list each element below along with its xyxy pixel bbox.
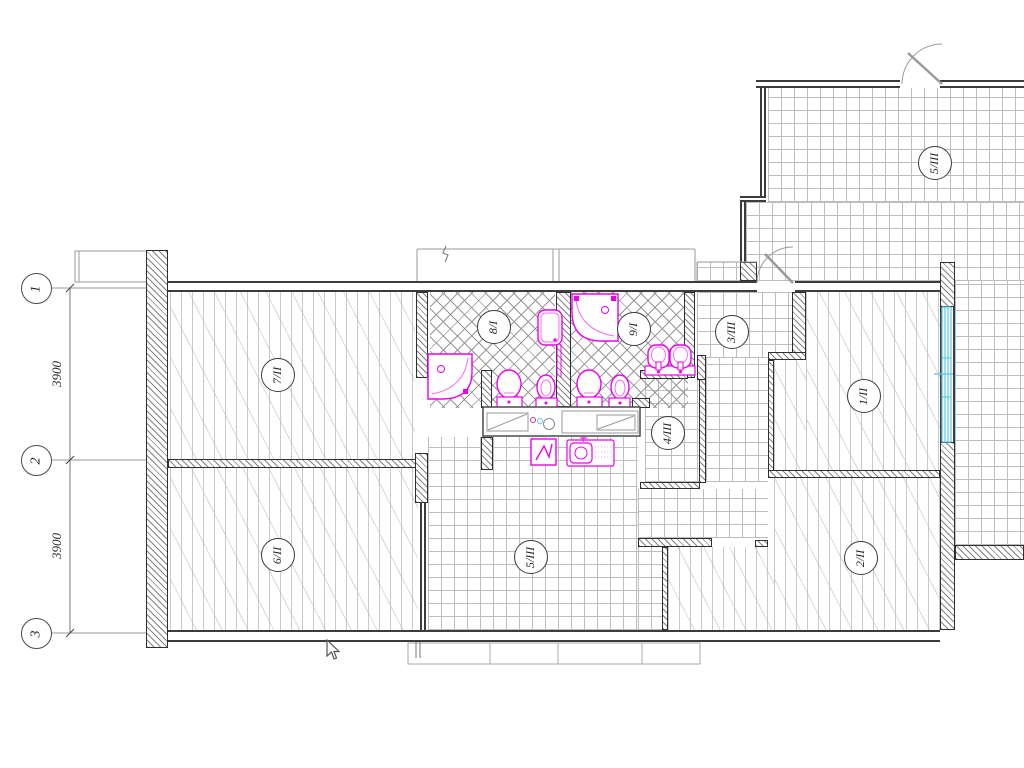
grid-axis-label: 2	[29, 457, 45, 464]
floor-upper-block-tile-c	[697, 262, 746, 281]
wall-pier-upper-block	[740, 262, 757, 281]
grid-axis-bubble-2: 2	[21, 445, 52, 476]
dimension-line-vertical	[52, 284, 146, 637]
room-marker-label: 3/III	[724, 321, 739, 342]
floor-upper-block-tile-b	[746, 202, 1024, 281]
room-marker-3: 3/III	[715, 315, 749, 349]
room-marker-9: 9/I	[617, 312, 651, 346]
grid-axis-bubble-3: 3	[21, 618, 52, 649]
dimension-text-2-3: 3900	[49, 533, 65, 559]
floor-upper-block-tile-a	[768, 88, 1024, 202]
wall-exterior-bottom	[168, 630, 940, 642]
wall-pier-counter-left	[481, 437, 493, 470]
room-marker-2: 2/II	[844, 541, 878, 575]
room-marker-label: 7/II	[270, 366, 285, 383]
room-marker-8: 8/I	[477, 310, 511, 344]
wall-exterior-right-lower	[940, 442, 955, 630]
wall-exterior-top-right	[795, 281, 940, 292]
wall-pier-toilet-left	[481, 370, 492, 408]
wall-corridor-room1	[768, 360, 774, 472]
wall-corridor-bottom-b	[755, 540, 768, 547]
floor-bathroom9-crosshatch	[571, 292, 688, 408]
room-marker-5-kitchen: 5/III	[514, 540, 548, 574]
wall-under-washbasins	[640, 370, 688, 379]
wall-room7-bath8	[416, 292, 428, 378]
wall-upper-block-top-right	[940, 80, 1024, 88]
room-marker-1: 1/II	[847, 379, 881, 413]
wall-right-window-jamb	[940, 307, 955, 442]
wall-exterior-top-left	[168, 281, 757, 292]
wall-room4-right	[699, 378, 706, 483]
balcony-outline-top-left	[75, 251, 146, 282]
wall-pier-toilet-right	[632, 398, 650, 408]
wall-kitchen-room6	[420, 503, 426, 630]
room-marker-label: 4/III	[660, 422, 675, 443]
floor-corridor-tile	[706, 358, 768, 482]
room-marker-label: 1/II	[856, 387, 871, 404]
door-upper-block	[902, 44, 942, 84]
wall-room4-junction	[697, 355, 706, 380]
wall-corridor-top	[768, 352, 806, 360]
floor-room1-parquet-ext	[774, 360, 806, 470]
floor-plan-canvas: 1 2 3 3900 3900 7/II 8/I 9/I 3/III 1/II …	[0, 0, 1024, 768]
wall-exterior-left	[146, 250, 168, 648]
wall-room1-room2	[768, 470, 940, 478]
floor-right-strip-tile	[955, 281, 1024, 545]
mouse-cursor	[327, 640, 339, 659]
wall-stub-room2	[662, 547, 668, 630]
grid-axis-bubble-1: 1	[21, 273, 52, 304]
room-marker-label: 6/II	[270, 546, 285, 563]
wall-exterior-right-upper	[940, 262, 955, 307]
room-marker-label: 5/III	[927, 152, 942, 173]
room-marker-5-upper: 5/III	[918, 146, 952, 180]
kitchen-counter-with-sinks	[483, 407, 640, 436]
floor-corridor-low-tile	[638, 489, 768, 538]
dimension-text-1-2: 3900	[49, 361, 65, 387]
room-marker-label: 5/III	[523, 546, 538, 567]
floor-room2-parquet-ext	[668, 547, 774, 630]
wall-pier-mid-left	[415, 453, 428, 503]
floor-kitchen-tile	[428, 437, 638, 630]
wall-corridor-bottom-a	[638, 538, 712, 547]
floor-corridor-stub-tile	[638, 547, 664, 630]
room-marker-7: 7/II	[261, 358, 295, 392]
bottom-window-strip	[408, 642, 700, 664]
wall-room3-room1	[792, 292, 806, 358]
wall-right-strip-bottom	[955, 545, 1024, 560]
wall-room7-room6	[168, 459, 417, 468]
wall-upper-block-top-left	[756, 80, 900, 88]
room-marker-label: 9/I	[627, 322, 642, 335]
room-marker-6: 6/II	[261, 538, 295, 572]
grid-axis-label: 3	[29, 630, 45, 637]
wall-upper-block-left-lower	[740, 202, 746, 262]
wall-room4-bottom	[640, 482, 700, 489]
room-marker-4: 4/III	[651, 416, 685, 450]
room-marker-label: 8/I	[487, 320, 502, 333]
wall-upper-block-left	[760, 88, 766, 196]
wall-bath9-room3	[684, 292, 695, 378]
wall-bath-divider	[556, 292, 571, 407]
grid-axis-label: 1	[29, 285, 45, 292]
room-marker-label: 2/II	[853, 549, 868, 566]
